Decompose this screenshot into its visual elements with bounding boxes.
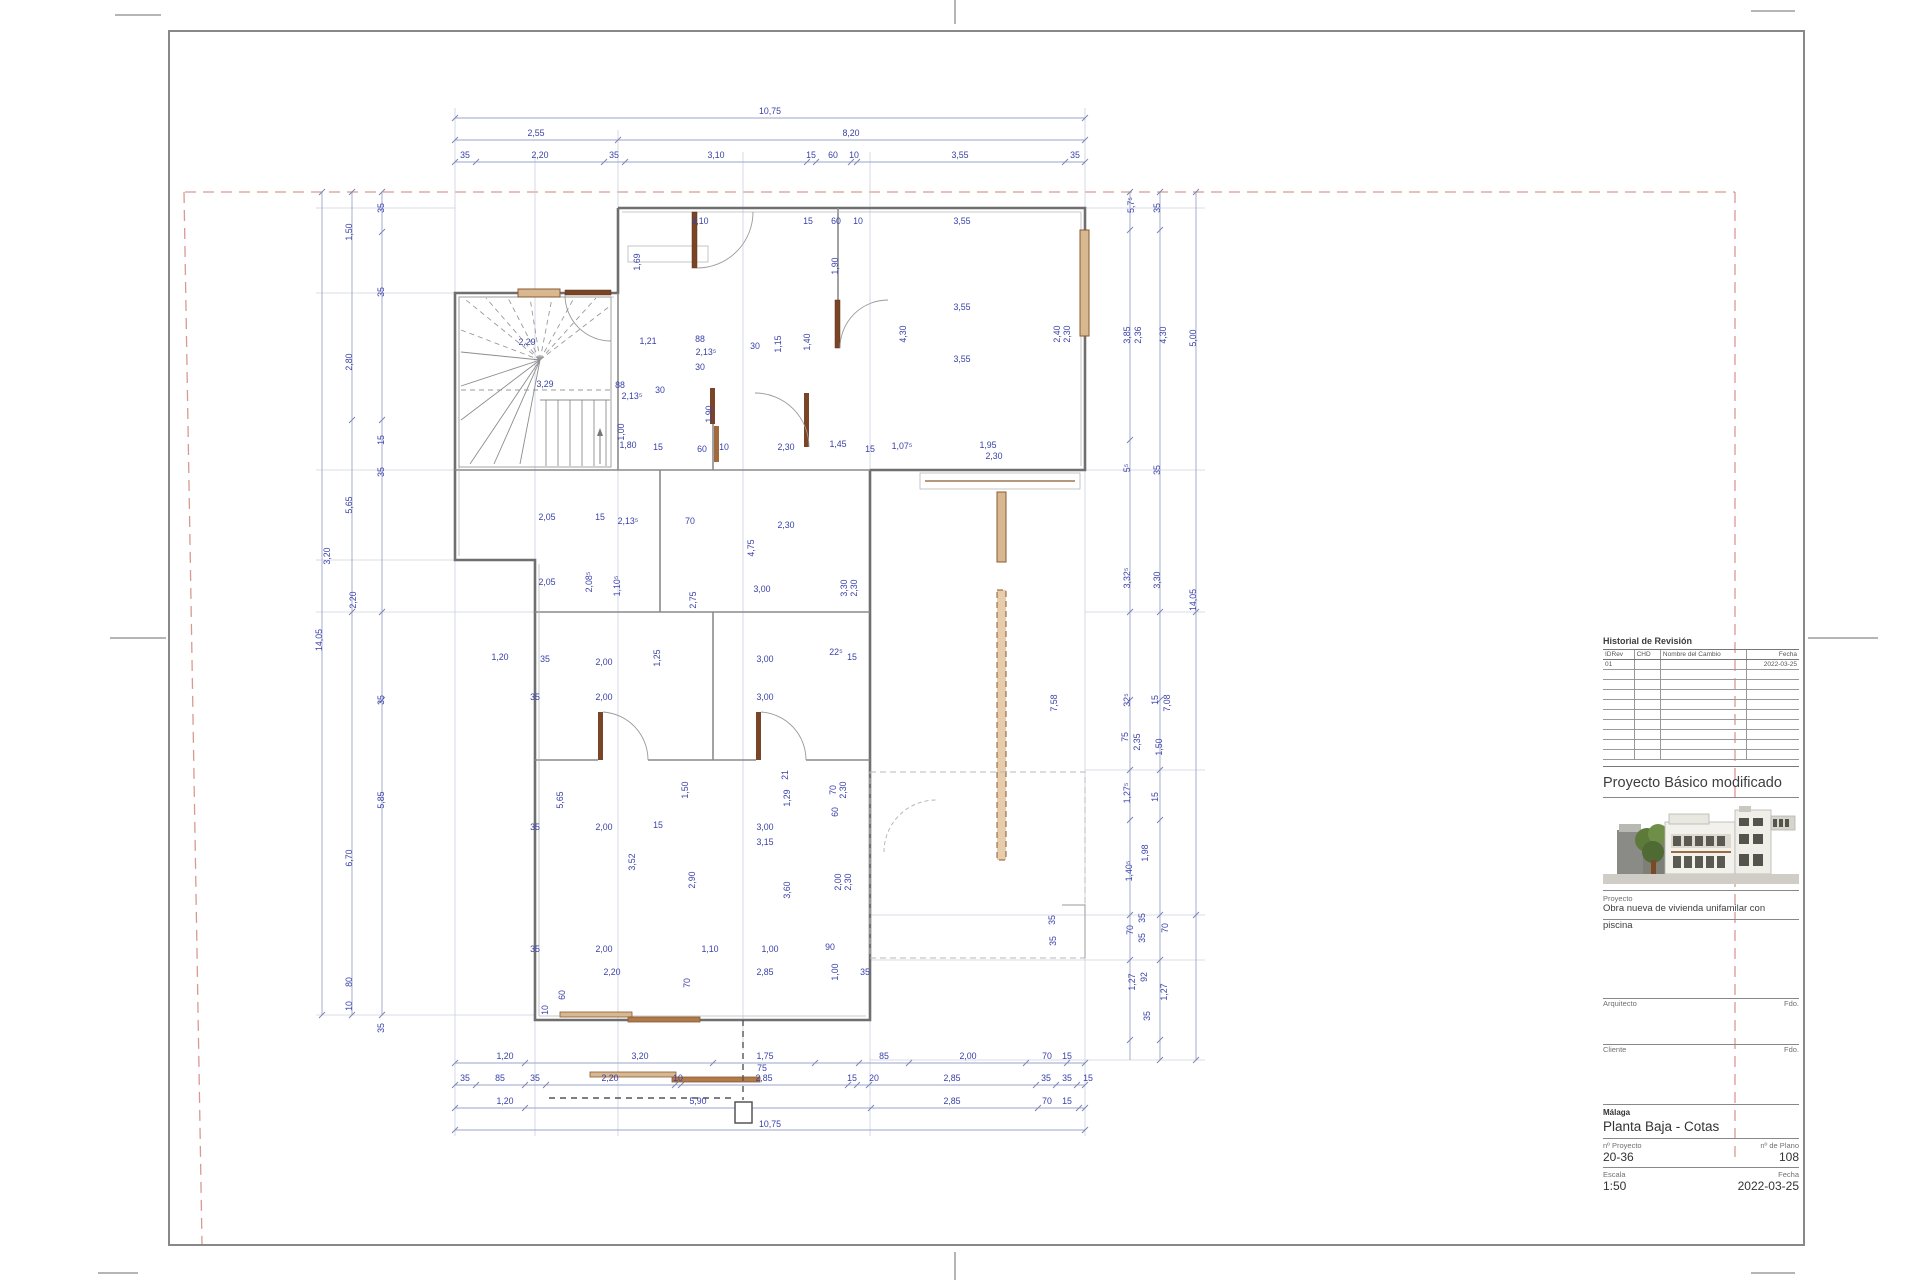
dim-label: 10 <box>540 1005 550 1015</box>
dim-label: 15 <box>1150 695 1160 705</box>
dim-label: 3,00 <box>753 584 770 594</box>
dim-label: 5,00 <box>1188 329 1198 346</box>
revision-col-2: Nombre del Cambio <box>1660 650 1747 660</box>
dim-label: 4,75 <box>746 539 756 556</box>
dim-label: 2,30 <box>1062 325 1072 342</box>
dim-label: 1,10⁵ <box>612 575 622 596</box>
room-door1-panel <box>598 712 603 760</box>
dim-label: 15 <box>1062 1051 1072 1061</box>
dim-label: 35 <box>1062 1073 1072 1083</box>
dim-label: 70 <box>1042 1051 1052 1061</box>
dim-label: 70 <box>1042 1096 1052 1106</box>
dim-label: 2,85 <box>756 967 773 977</box>
dim-label: 35 <box>530 692 540 702</box>
revision-col-1: CHD <box>1634 650 1660 660</box>
dim-label: 2,30 <box>985 451 1002 461</box>
dim-label: 1,90 <box>830 257 840 274</box>
dim-label: 35 <box>376 467 386 477</box>
dim-label: 30 <box>655 385 665 395</box>
cliente-fdo-label: Fdo. <box>1784 1045 1799 1054</box>
dim-label: 15 <box>1083 1073 1093 1083</box>
dim-label: 1,45 <box>829 439 846 449</box>
dim-label: 35 <box>530 822 540 832</box>
dim-label: 2,05 <box>538 512 555 522</box>
dim-label: 70 <box>1160 923 1170 933</box>
kitchen-window <box>997 492 1006 562</box>
revision-row <box>1603 740 1799 750</box>
room-door1-swing <box>603 712 648 760</box>
dim-label: 7,58 <box>1049 694 1059 711</box>
dim-label: 88 <box>615 380 625 390</box>
dim-label: 60 <box>830 807 840 817</box>
fecha-label: Fecha <box>1778 1170 1799 1179</box>
dim-label: 92 <box>1139 972 1149 982</box>
dim-label: 35 <box>530 944 540 954</box>
dim-label: 1,69 <box>632 253 642 270</box>
dim-label: 35 <box>609 150 619 160</box>
corridor-door-swing <box>755 393 809 447</box>
dim-label: 35 <box>1070 150 1080 160</box>
dim-label: 15 <box>653 820 663 830</box>
dim-label: 1,27 <box>1127 973 1137 990</box>
dim-label: 2,00 <box>595 657 612 667</box>
dim-label: 2,20 <box>603 967 620 977</box>
dim-label: 60 <box>557 990 567 1000</box>
dim-label: 1,00 <box>616 423 626 440</box>
dim-label: 15 <box>1062 1096 1072 1106</box>
dim-label: 35 <box>860 967 870 977</box>
arquitecto-fdo-label: Fdo. <box>1784 999 1799 1008</box>
dim-label: 2,75 <box>688 591 698 608</box>
revision-row <box>1603 680 1799 690</box>
dim-label: 2,85 <box>755 1073 772 1083</box>
revision-row <box>1603 750 1799 760</box>
dim-label: 75 <box>757 1063 767 1073</box>
dim-label: 2,90 <box>687 871 697 888</box>
proyecto-label: Proyecto <box>1603 894 1799 903</box>
extension-lines <box>316 108 1205 1136</box>
dim-label: 35 <box>1137 933 1147 943</box>
dimension-chain-lines <box>322 118 1196 1130</box>
room-door2-swing <box>761 712 806 760</box>
dim-label: 2,30 <box>849 579 859 596</box>
walls-thin-lines <box>459 212 1081 1016</box>
dim-label: 2,40 <box>1052 325 1062 342</box>
revision-row: 01 2022-03-25 <box>1603 660 1799 670</box>
plan-sheet-page: { "title_block": { "revision": { "title"… <box>0 0 1920 1280</box>
dim-label: 2,00 <box>833 873 843 890</box>
num-proyecto-label: nº Proyecto <box>1603 1141 1642 1150</box>
dim-label: 1,21 <box>639 336 656 346</box>
dimension-labels: 10,752,558,20352,20353,101560103,55351,2… <box>314 106 1198 1129</box>
living-window <box>1080 230 1089 336</box>
dim-label: 5⁵ <box>1122 463 1132 472</box>
dim-label: 2,85 <box>943 1096 960 1106</box>
patio-outline <box>870 772 1085 958</box>
dim-label: 3,00 <box>756 654 773 664</box>
dim-label: 1,20 <box>496 1096 513 1106</box>
dim-label: 1,50 <box>344 223 354 240</box>
dim-label: 3,60 <box>782 881 792 898</box>
dim-label: 5,65 <box>555 791 565 808</box>
revision-row <box>1603 710 1799 720</box>
column-marker <box>735 1102 752 1123</box>
dim-label: 2,00 <box>595 822 612 832</box>
dim-label: 1,95 <box>979 440 996 450</box>
dim-label: 70 <box>685 516 695 526</box>
dim-label: 10,75 <box>759 106 781 116</box>
dim-label: 1,00 <box>761 944 778 954</box>
dim-label: 80 <box>344 977 354 987</box>
dim-label: 30 <box>695 362 705 372</box>
dim-label: 2,30 <box>843 873 853 890</box>
arquitecto-label: Arquitecto <box>1603 999 1637 1008</box>
dim-label: 3,30 <box>1152 571 1162 588</box>
revision-history-title: Historial de Revisión <box>1603 636 1799 646</box>
project-title: Proyecto Básico modificado <box>1603 775 1799 791</box>
dim-label: 2,05 <box>538 577 555 587</box>
dim-label: 60 <box>828 150 838 160</box>
dim-label: 35 <box>460 1073 470 1083</box>
dim-label: 2,35 <box>1132 733 1142 750</box>
dim-label: 3,55 <box>953 302 970 312</box>
dim-label: 1,50 <box>1154 738 1164 755</box>
dim-label: 15 <box>803 216 813 226</box>
dim-label: 15 <box>865 444 875 454</box>
dim-label: 3,20 <box>322 547 332 564</box>
dim-label: 35 <box>376 203 386 213</box>
dim-label: 32⁵ <box>1122 693 1132 707</box>
dim-label: 35 <box>1047 915 1057 925</box>
dim-label: 7,08 <box>1162 694 1172 711</box>
dim-label: 85 <box>495 1073 505 1083</box>
dim-label: 2,00 <box>959 1051 976 1061</box>
proyecto-description-line1: Obra nueva de vivienda unifamilar con <box>1603 903 1799 915</box>
dim-label: 3,32⁵ <box>1122 567 1132 588</box>
dim-label: 2,13⁵ <box>696 347 717 357</box>
dim-label: 15 <box>847 1073 857 1083</box>
dim-label: 2,85 <box>943 1073 960 1083</box>
revision-row <box>1603 700 1799 710</box>
num-plano-label: nº de Plano <box>1760 1141 1799 1150</box>
south-slider-leaf2 <box>672 1077 760 1082</box>
dim-label: 2,30 <box>777 442 794 452</box>
dim-label: 3,55 <box>951 150 968 160</box>
walls-interior <box>455 208 870 760</box>
dim-label: 4,30 <box>1158 326 1168 343</box>
num-proyecto-value: 20-36 <box>1603 1150 1634 1164</box>
revision-col-0: IDRev <box>1603 650 1634 660</box>
dim-label: 35 <box>530 1073 540 1083</box>
dim-label: 2,13⁵ <box>622 391 643 401</box>
dim-label: 35 <box>540 654 550 664</box>
revision-row <box>1603 720 1799 730</box>
dim-label: 15 <box>847 652 857 662</box>
dim-label: 5,7⁵ <box>1126 197 1136 213</box>
dim-label: 35 <box>1048 936 1058 946</box>
dim-label: 3,00 <box>756 692 773 702</box>
bottom-slider-leaf1 <box>560 1012 632 1017</box>
dim-label: 2,00 <box>595 944 612 954</box>
dim-label: 35 <box>1152 203 1162 213</box>
dim-label: 15 <box>376 435 386 445</box>
dim-label: 3,29 <box>536 379 553 389</box>
dim-label: 35 <box>1152 465 1162 475</box>
dim-label: 14,05 <box>314 629 324 651</box>
escala-value: 1:50 <box>1603 1179 1626 1193</box>
dim-label: 90 <box>825 942 835 952</box>
dim-label: 1,40 <box>802 333 812 350</box>
dim-label: 22⁵ <box>829 647 843 657</box>
dim-label: 10 <box>719 442 729 452</box>
stair-window <box>518 289 560 297</box>
dim-label: 60 <box>697 444 707 454</box>
dim-label: 3,85 <box>1122 326 1132 343</box>
dim-label: 2,55 <box>527 128 544 138</box>
dim-label: 70 <box>1125 925 1135 935</box>
dim-label: 1,27 <box>1159 983 1169 1000</box>
fecha-value: 2022-03-25 <box>1738 1179 1799 1193</box>
terrace-slider <box>997 590 1006 860</box>
dim-label: 88 <box>695 334 705 344</box>
dim-label: 85 <box>879 1051 889 1061</box>
dim-label: 35 <box>1142 1011 1152 1021</box>
dim-label: 2,13⁵ <box>618 516 639 526</box>
num-plano-value: 108 <box>1779 1150 1799 1164</box>
dim-label: 2,30 <box>777 520 794 530</box>
dim-label: 21 <box>780 770 790 780</box>
dim-label: 35 <box>460 150 470 160</box>
revision-row <box>1603 730 1799 740</box>
dim-label: 1,98 <box>1140 844 1150 861</box>
dim-label: 5,90 <box>689 1096 706 1106</box>
dim-label: 3,55 <box>953 354 970 364</box>
dim-label: 1,00 <box>830 963 840 980</box>
room-door2-panel <box>756 712 761 760</box>
site-boundary <box>184 192 1735 1244</box>
sheet-name: Planta Baja - Cotas <box>1603 1119 1799 1134</box>
dim-label: 2,80 <box>344 353 354 370</box>
dim-label: 2,29 <box>518 337 535 347</box>
dim-label: 15 <box>653 442 663 452</box>
dim-label: 1,75 <box>756 1051 773 1061</box>
dim-label: 15 <box>595 512 605 522</box>
dim-label: 2,20 <box>601 1073 618 1083</box>
revision-col-3: Fecha <box>1747 650 1799 660</box>
dim-label: 3,15 <box>756 837 773 847</box>
dim-label: 1,20 <box>496 1051 513 1061</box>
living-door-panel <box>835 300 840 348</box>
dim-label: 3,10 <box>707 150 724 160</box>
dim-label: 20 <box>869 1073 879 1083</box>
dim-label: 70 <box>682 978 692 988</box>
dim-label: 35 <box>376 695 386 705</box>
dimension-ticks <box>319 115 1199 1133</box>
dim-label: 14,05 <box>1188 589 1198 611</box>
dim-label: 3,20 <box>631 1051 648 1061</box>
hall-door-panel <box>565 290 611 295</box>
dim-label: 2,20 <box>348 591 358 608</box>
bottom-slider-leaf2 <box>628 1017 700 1022</box>
dim-label: 60 <box>831 216 841 226</box>
house-rendering-image <box>1603 804 1799 884</box>
dim-label: 35 <box>376 287 386 297</box>
dim-label: 1,29 <box>782 789 792 806</box>
dim-label: 2,00 <box>595 692 612 702</box>
dim-label: 1,15 <box>773 335 783 352</box>
dim-label: 3,30 <box>839 579 849 596</box>
dim-label: 1,25 <box>652 649 662 666</box>
cliente-label: Cliente <box>1603 1045 1626 1054</box>
escala-label: Escala <box>1603 1170 1626 1179</box>
dim-label: 1,10 <box>701 944 718 954</box>
dim-label: 35 <box>376 1023 386 1033</box>
dim-label: 2,36 <box>1133 326 1143 343</box>
dim-label: 1,90 <box>704 405 714 422</box>
dim-label: 35 <box>1041 1073 1051 1083</box>
walls-exterior <box>455 208 1085 1020</box>
title-block: Historial de Revisión IDRevCHDNombre del… <box>1603 636 1799 1193</box>
dim-label: 10 <box>344 1001 354 1011</box>
dim-label: 3,52 <box>627 853 637 870</box>
dim-label: 70 <box>828 785 838 795</box>
dim-label: 10 <box>673 1073 683 1083</box>
dim-label: 10 <box>853 216 863 226</box>
proyecto-description-line2: piscina <box>1603 920 1799 932</box>
revision-table: IDRevCHDNombre del CambioFecha 01 2022-0… <box>1603 649 1799 760</box>
dim-label: 5,85 <box>376 791 386 808</box>
dim-label: 35 <box>1137 913 1147 923</box>
revision-row <box>1603 670 1799 680</box>
dim-label: 2,20 <box>531 150 548 160</box>
living-door-swing <box>840 300 888 348</box>
dim-label: 6,70 <box>344 849 354 866</box>
revision-row <box>1603 690 1799 700</box>
dim-label: 10 <box>849 150 859 160</box>
terrace-door-swing <box>884 800 936 852</box>
dim-label: 3,10 <box>691 216 708 226</box>
dim-label: 2,08⁵ <box>584 571 594 592</box>
city-label: Málaga <box>1603 1108 1799 1117</box>
dim-label: 15 <box>806 150 816 160</box>
dim-label: 1,27⁵ <box>1122 782 1132 803</box>
dim-label: 1,40⁵ <box>1124 860 1134 881</box>
dim-label: 3,55 <box>953 216 970 226</box>
dim-label: 3,00 <box>756 822 773 832</box>
dim-label: 8,20 <box>842 128 859 138</box>
dim-label: 1,07⁵ <box>892 441 913 451</box>
dim-label: 15 <box>1150 792 1160 802</box>
dim-label: 5,65 <box>344 496 354 513</box>
dim-label: 1,20 <box>491 652 508 662</box>
dim-label: 30 <box>750 341 760 351</box>
dim-label: 2,30 <box>838 781 848 798</box>
dim-label: 1,50 <box>680 781 690 798</box>
dim-label: 75 <box>1120 732 1130 742</box>
dim-label: 10,75 <box>759 1119 781 1129</box>
dim-label: 4,30 <box>898 325 908 342</box>
